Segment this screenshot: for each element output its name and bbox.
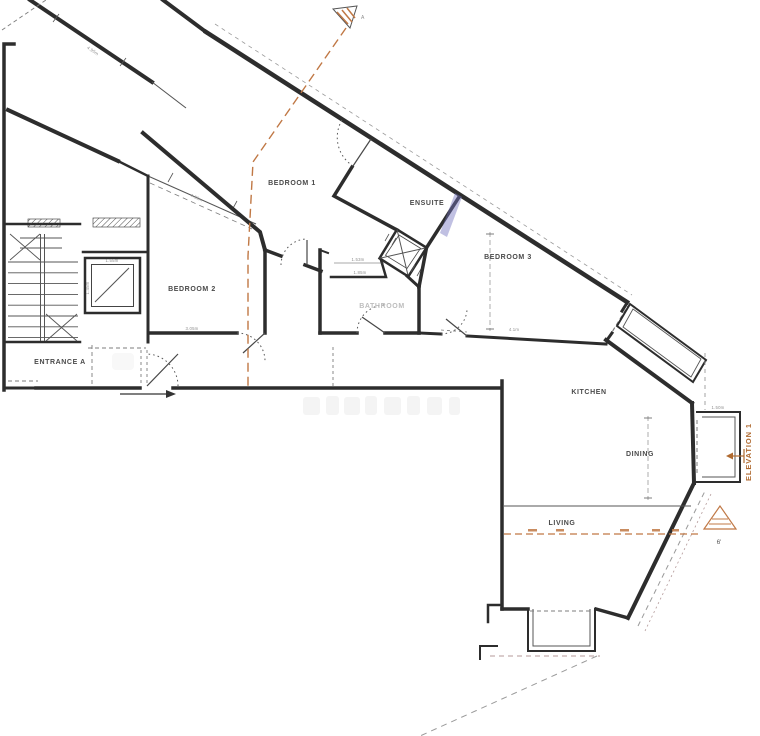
bedroom1-door-arc bbox=[281, 239, 307, 265]
bathroom-walls bbox=[320, 250, 419, 333]
room-label-kitchen: KITCHEN bbox=[571, 389, 606, 396]
living-balcony bbox=[420, 609, 600, 736]
floor-plan-page: 4.95m 4.95m 1.55m 1.45m 1.53m 1.85m 3.05… bbox=[0, 0, 760, 736]
entrance-hall bbox=[4, 345, 500, 398]
floor-plan-canvas: 4.95m 4.95m 1.55m 1.45m 1.53m 1.85m 3.05… bbox=[0, 0, 760, 736]
room-label-entrance: ENTRANCE A bbox=[34, 359, 86, 366]
height-marker-triangle-icon bbox=[704, 506, 736, 529]
dim-label: 3.05m bbox=[186, 326, 199, 331]
watermark bbox=[112, 353, 460, 415]
exterior-walls bbox=[4, 0, 632, 390]
section-letter-label: A bbox=[361, 15, 365, 21]
elevation-balcony bbox=[697, 353, 740, 482]
dim-label: 1.53m bbox=[352, 257, 365, 262]
kitchen-living-walls bbox=[480, 303, 711, 659]
room-label-bedroom1: BEDROOM 1 bbox=[268, 180, 316, 187]
elevation-label: ELEVATION 1 bbox=[744, 423, 753, 481]
bedroom-walls bbox=[143, 133, 321, 361]
dim-label: 1.50m bbox=[712, 405, 725, 410]
entrance-arrow-icon bbox=[120, 390, 176, 398]
terrace bbox=[617, 304, 706, 382]
service-shaft bbox=[380, 230, 427, 277]
bedroom3-door-arc bbox=[441, 310, 467, 334]
dim-label: 1.45m bbox=[85, 281, 90, 294]
room-label-ensuite: ENSUITE bbox=[410, 200, 445, 207]
room-label-dining: DINING bbox=[626, 451, 654, 458]
room-label-bathroom: BATHROOM bbox=[359, 303, 405, 310]
height-note-label: 6' bbox=[717, 539, 722, 546]
room-label-bedroom2: BEDROOM 2 bbox=[168, 286, 216, 293]
room-label-bedroom3: BEDROOM 3 bbox=[484, 254, 532, 261]
section-triangle-a-icon bbox=[333, 6, 357, 28]
room-label-living: LIVING bbox=[549, 520, 576, 527]
section-line-notes bbox=[528, 529, 679, 532]
dim-label: 4.1m bbox=[509, 327, 520, 332]
dim-label: 1.85m bbox=[354, 270, 367, 275]
stairs bbox=[6, 218, 140, 342]
dim-label: 4.95m bbox=[190, 193, 204, 203]
dim-label: 1.55m bbox=[106, 258, 119, 263]
